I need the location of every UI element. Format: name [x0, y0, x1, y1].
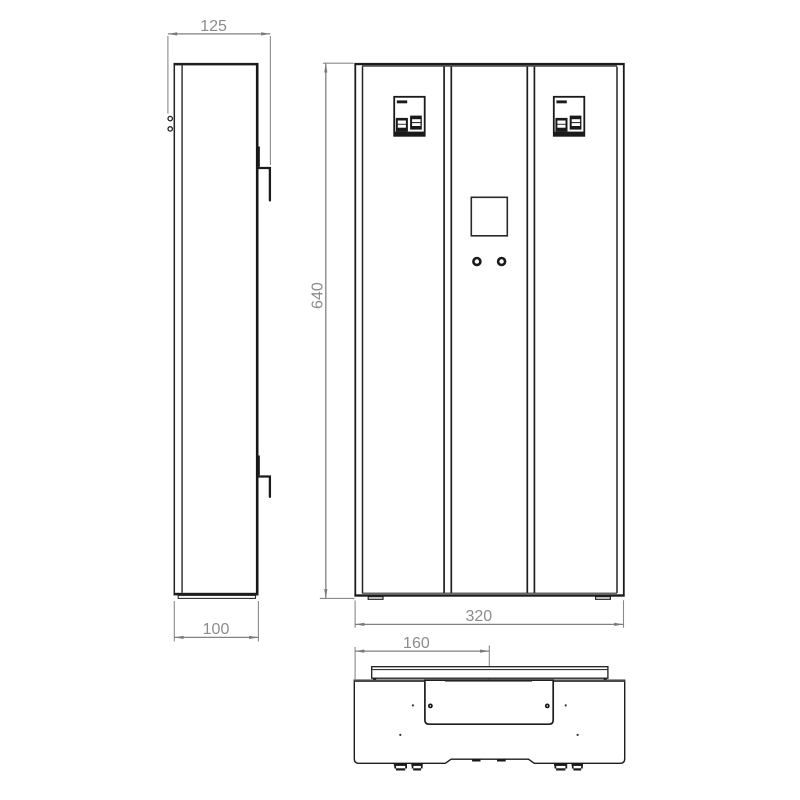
- svg-text:320: 320: [465, 608, 492, 625]
- svg-text:100: 100: [203, 621, 230, 638]
- svg-text:160: 160: [403, 635, 430, 652]
- svg-text:640: 640: [310, 282, 327, 309]
- svg-text:125: 125: [200, 18, 227, 35]
